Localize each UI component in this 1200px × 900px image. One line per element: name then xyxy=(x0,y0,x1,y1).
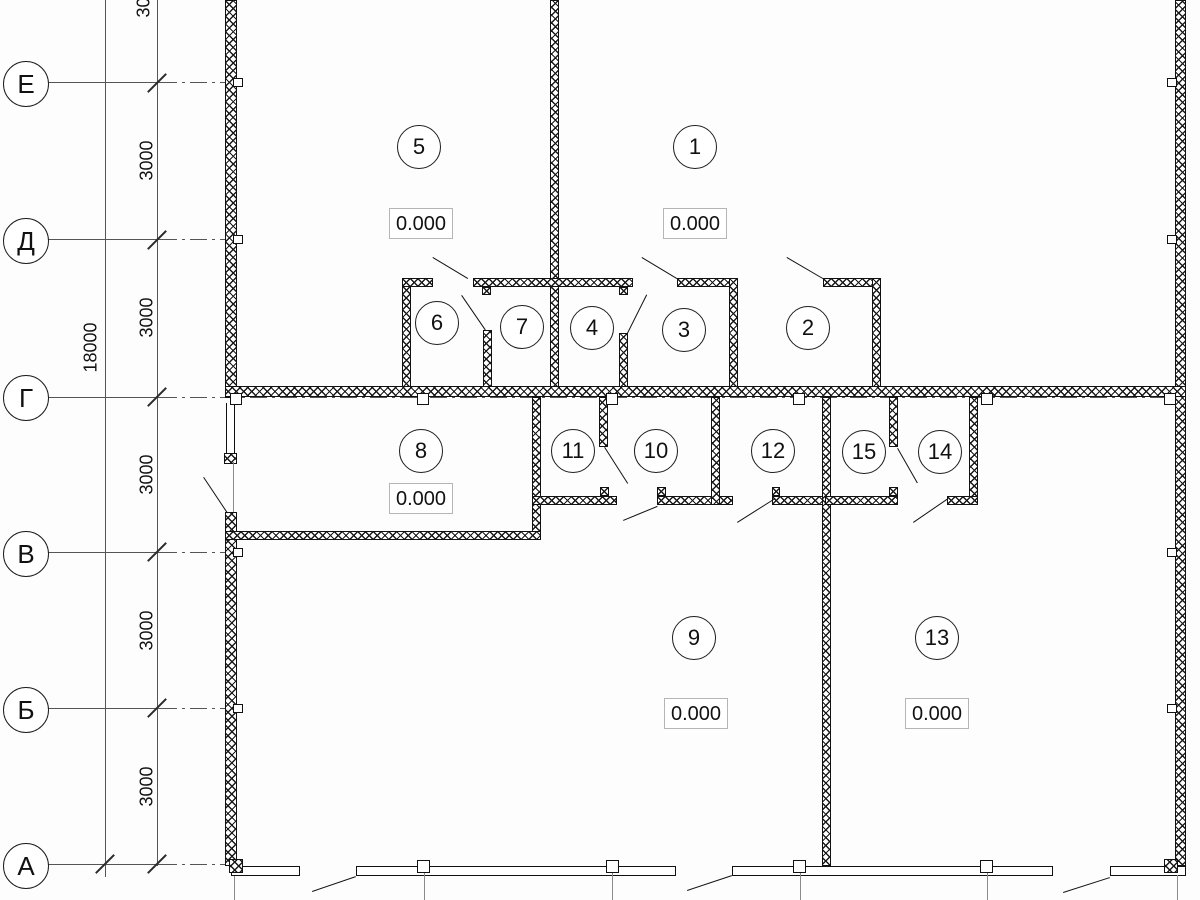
pilaster-left-v xyxy=(233,548,243,557)
axis-label-b: Б xyxy=(17,697,34,723)
wall-jamb-6-7 xyxy=(482,287,491,295)
axis-label-v: В xyxy=(17,541,34,567)
axis-line-v xyxy=(47,552,160,553)
wall-exterior-left-lower xyxy=(225,512,237,866)
wall-top-segment-b xyxy=(473,278,633,287)
axis-bubble-d: Д xyxy=(3,218,49,264)
wall-room10-bottom xyxy=(657,496,733,505)
pilaster-left-b xyxy=(233,704,243,713)
wall-jamb-15 xyxy=(889,487,898,496)
wall-room9-room13 xyxy=(822,397,831,866)
axis-bubble-v: В xyxy=(3,531,49,577)
door-leaf-room3-top xyxy=(641,257,677,279)
room-number-5: 5 xyxy=(413,136,425,158)
room-circle-14: 14 xyxy=(918,430,962,474)
column-a-5 xyxy=(980,860,993,873)
dimension-label-3000-1: 3000 xyxy=(137,131,158,191)
room-circle-5: 5 xyxy=(397,125,441,169)
room-number-6: 6 xyxy=(431,312,443,334)
column-a-corner-left xyxy=(229,859,243,873)
axis-line-g xyxy=(47,397,160,398)
wall-room8-bottom xyxy=(225,531,541,540)
door-threshold-left xyxy=(233,462,234,513)
pilaster-right-e xyxy=(1167,78,1177,87)
room-number-4: 4 xyxy=(586,317,598,339)
room-circle-6: 6 xyxy=(415,301,459,345)
door-leaf-room14-bottom xyxy=(913,498,948,523)
elevation-room-8: 0.000 xyxy=(389,483,453,514)
column-g-1 xyxy=(230,393,242,405)
room-number-7: 7 xyxy=(516,316,528,338)
wall-jamb-11 xyxy=(600,487,609,496)
witness-line-4 xyxy=(800,873,801,900)
dimension-line-total xyxy=(105,0,106,877)
window-band-2 xyxy=(356,866,676,876)
floor-plan-canvas: 3000 3000 3000 3000 3000 3000 18000 xyxy=(0,0,1200,900)
elevation-room-1: 0.000 xyxy=(663,208,727,239)
wall-partition-4-3 xyxy=(619,333,628,388)
room-number-14: 14 xyxy=(928,441,952,463)
room-number-3: 3 xyxy=(678,319,690,341)
wall-room8-right xyxy=(532,397,541,540)
wall-left-door-jamb xyxy=(224,453,237,464)
wall-room14-right xyxy=(969,397,978,505)
axis-line-e xyxy=(47,82,160,83)
room-circle-12: 12 xyxy=(751,429,795,473)
door-leaf-6-7 xyxy=(461,295,486,330)
door-leaf-room6-top xyxy=(432,257,468,279)
wall-partition-6-7 xyxy=(483,330,492,388)
wall-room3-room2 xyxy=(729,278,738,388)
axis-bubble-a: А xyxy=(3,843,49,889)
wall-top-segment-c xyxy=(677,278,731,287)
room-circle-11: 11 xyxy=(551,429,595,473)
wall-room12-bottom xyxy=(772,496,825,505)
wall-top-segment-a xyxy=(402,278,433,287)
axis-line-b xyxy=(47,708,160,709)
dimension-label-3000-0: 3000 xyxy=(134,0,155,28)
elevation-value-5: 0.000 xyxy=(396,214,446,234)
column-a-3 xyxy=(606,860,619,873)
door-leaf-room10-bottom xyxy=(623,506,658,521)
wall-partition-15-14 xyxy=(889,397,898,447)
axis-line-g-dash xyxy=(160,397,1186,398)
axis-bubble-e: Е xyxy=(3,61,49,107)
room-circle-2: 2 xyxy=(786,306,830,350)
room-circle-7: 7 xyxy=(500,305,544,349)
column-g-3 xyxy=(606,393,618,405)
window-band-3 xyxy=(732,866,1053,876)
axis-line-v-dash xyxy=(160,552,228,553)
elevation-value-9: 0.000 xyxy=(671,704,721,724)
room-circle-8: 8 xyxy=(399,429,443,473)
room-circle-9: 9 xyxy=(672,616,716,660)
room-number-8: 8 xyxy=(415,440,427,462)
wall-room6-left xyxy=(402,278,411,388)
room-circle-3: 3 xyxy=(662,308,706,352)
wall-jamb-10 xyxy=(657,487,666,496)
pilaster-right-b xyxy=(1167,704,1177,713)
room-circle-15: 15 xyxy=(842,430,886,474)
axis-label-a: А xyxy=(17,853,34,879)
witness-line-6 xyxy=(1177,875,1178,900)
axis-line-b-dash xyxy=(160,708,228,709)
room-circle-13: 13 xyxy=(915,616,959,660)
pilaster-right-v xyxy=(1167,548,1177,557)
room-number-10: 10 xyxy=(644,440,668,462)
wall-room2-right xyxy=(872,278,881,388)
witness-line-3 xyxy=(612,873,613,900)
room-number-1: 1 xyxy=(689,136,701,158)
door-leaf-room12-bottom xyxy=(737,498,776,523)
elevation-room-9: 0.000 xyxy=(664,698,728,729)
dimension-label-3000-3: 3000 xyxy=(137,445,158,505)
wall-room14-bottom xyxy=(947,496,978,505)
column-a-4 xyxy=(793,860,806,873)
elevation-value-13: 0.000 xyxy=(912,704,962,724)
column-a-2 xyxy=(417,860,430,873)
column-g-4 xyxy=(793,393,805,405)
elevation-value-1: 0.000 xyxy=(670,214,720,234)
wall-center-vertical xyxy=(550,0,559,388)
wall-jamb-12 xyxy=(772,487,780,496)
wall-top-segment-d xyxy=(823,278,874,287)
axis-line-d-dash xyxy=(160,239,228,240)
door-leaf-15-14 xyxy=(897,448,918,483)
column-a-corner-right xyxy=(1164,859,1178,873)
room-circle-1: 1 xyxy=(673,125,717,169)
room-number-12: 12 xyxy=(761,440,785,462)
door-leaf-4-3 xyxy=(627,295,647,334)
wall-jamb-4-3 xyxy=(619,287,628,295)
axis-bubble-b: Б xyxy=(3,687,49,733)
dimension-label-3000-5: 3000 xyxy=(137,757,158,817)
room-number-11: 11 xyxy=(562,440,585,462)
column-g-5 xyxy=(981,393,993,405)
door-leaf-exterior-left xyxy=(203,477,228,513)
witness-line-5 xyxy=(987,873,988,900)
room-number-2: 2 xyxy=(802,317,814,339)
wall-axis-g xyxy=(225,386,1186,397)
room-circle-10: 10 xyxy=(634,429,678,473)
column-g-2 xyxy=(417,393,429,405)
axis-line-e-dash xyxy=(160,82,228,83)
door-leaf-entrance-1 xyxy=(312,876,356,892)
wall-exterior-right xyxy=(1175,0,1186,866)
dimension-label-total: 18000 xyxy=(81,308,102,388)
axis-label-e: Е xyxy=(17,71,34,97)
elevation-room-5: 0.000 xyxy=(389,208,453,239)
axis-label-d: Д xyxy=(17,228,35,254)
dimension-label-3000-4: 3000 xyxy=(137,601,158,661)
room-number-13: 13 xyxy=(925,627,949,649)
wall-room10-room12 xyxy=(711,397,720,505)
witness-line-1 xyxy=(234,876,235,900)
elevation-room-13: 0.000 xyxy=(905,698,969,729)
room-number-15: 15 xyxy=(852,441,876,463)
door-leaf-room2-top xyxy=(786,257,823,279)
window-left-wall xyxy=(226,403,235,453)
door-leaf-entrance-3 xyxy=(1063,877,1110,893)
pilaster-right-d xyxy=(1167,235,1177,244)
door-leaf-11-10 xyxy=(604,447,628,484)
room-circle-4: 4 xyxy=(570,306,614,350)
axis-label-g: Г xyxy=(19,385,33,411)
wall-room11-bottom xyxy=(532,496,617,505)
wall-room15-bottom xyxy=(825,496,898,505)
door-leaf-entrance-2 xyxy=(687,875,732,891)
wall-exterior-left-upper xyxy=(225,0,237,398)
elevation-value-8: 0.000 xyxy=(396,489,446,509)
pilaster-left-d xyxy=(233,235,243,244)
axis-line-d xyxy=(47,239,160,240)
dimension-label-3000-2: 3000 xyxy=(137,288,158,348)
axis-line-a-dash xyxy=(160,864,226,865)
axis-bubble-g: Г xyxy=(3,375,49,421)
room-number-9: 9 xyxy=(688,627,700,649)
column-g-6 xyxy=(1164,393,1176,405)
pilaster-left-e xyxy=(233,78,243,87)
witness-line-2 xyxy=(424,873,425,900)
